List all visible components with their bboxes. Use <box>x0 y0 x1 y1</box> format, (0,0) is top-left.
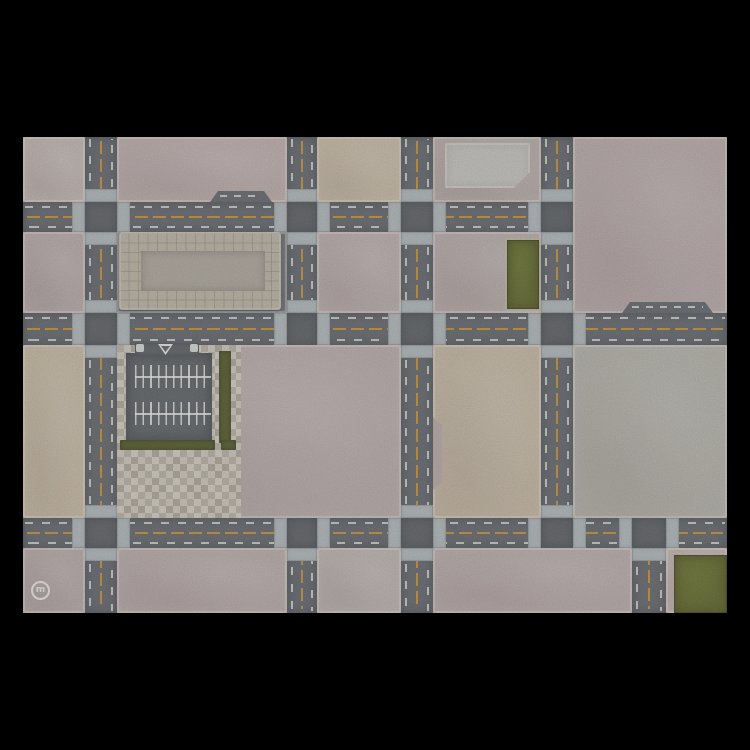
product-photo-stage: m <box>0 0 750 750</box>
entrance-curb-1 <box>136 344 144 352</box>
entrance-curb-2 <box>190 344 198 352</box>
manufacturer-logo: m <box>31 581 50 600</box>
city-streets-gaming-mat: m <box>23 137 727 613</box>
roadside-layer: m <box>23 137 727 613</box>
